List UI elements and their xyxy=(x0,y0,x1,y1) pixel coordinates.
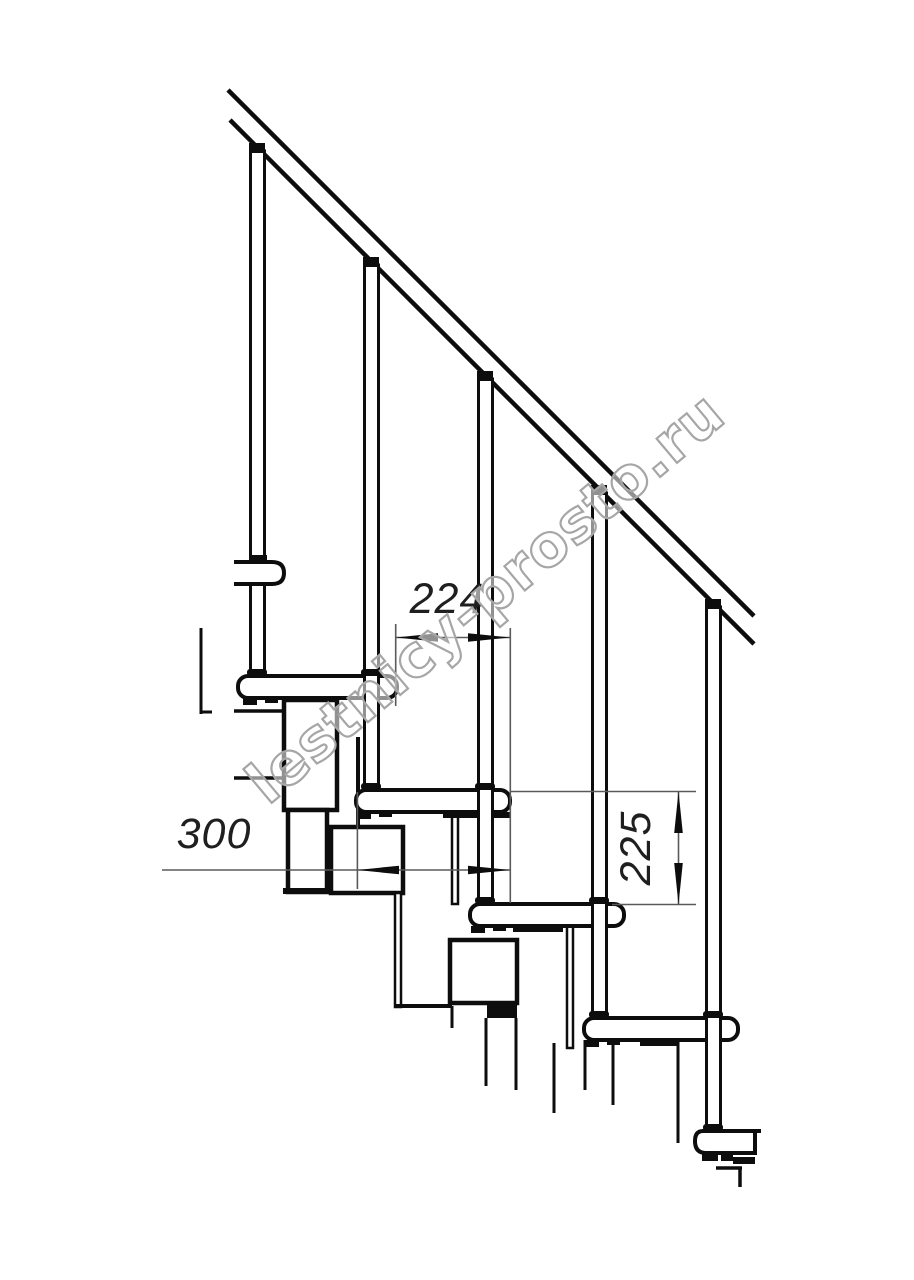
baluster-5 xyxy=(707,607,721,1131)
lower-flight-step-end xyxy=(695,1131,761,1187)
handrail-mount-3 xyxy=(477,371,493,381)
step-2-tab-b xyxy=(379,812,392,817)
dim-depth-label: 300 xyxy=(177,810,252,858)
upper-flight-step-end xyxy=(234,555,284,584)
step-4-underline xyxy=(640,1040,678,1046)
dim-rise-arrow-up xyxy=(674,792,683,834)
fastener-step2-right xyxy=(475,783,495,790)
upper-end-cap xyxy=(234,562,284,584)
fastener-step3-right xyxy=(589,897,609,904)
support-module-1-lower xyxy=(288,810,327,892)
lower-end-tab-a xyxy=(702,1153,718,1161)
lower-end-tab-b xyxy=(721,1155,733,1161)
lower-end-cap xyxy=(695,1131,755,1153)
fastener-step4-left xyxy=(589,1011,609,1018)
fastener-step1-left xyxy=(247,669,267,676)
step-3-tab-a xyxy=(471,926,485,933)
step-3-tab-b xyxy=(493,926,506,931)
drawing-canvas: 224 300 225 lestnicy-prosto.ru xyxy=(0,0,914,1280)
baluster-4 xyxy=(593,493,607,1018)
handrail-mount-2 xyxy=(363,257,379,267)
module-link-2-3 xyxy=(452,815,458,904)
support-module-2 xyxy=(331,827,403,893)
fastener-step4-right xyxy=(703,1011,723,1018)
lower-end-tab-c xyxy=(733,1157,755,1164)
module-2-drop-tube xyxy=(395,893,401,1007)
handrail-mount-1 xyxy=(249,143,265,153)
step-4-tab-a xyxy=(585,1040,599,1047)
staircase-drawing: 224 300 225 lestnicy-prosto.ru xyxy=(0,0,914,1280)
step-3-underline xyxy=(513,926,563,932)
baluster-1 xyxy=(251,151,265,676)
dim-rise-label: 225 xyxy=(612,811,660,887)
fastener-step3-left xyxy=(475,897,495,904)
step-2-underline xyxy=(443,812,510,818)
handrail-mount-5 xyxy=(705,599,721,609)
support-module-3-foot xyxy=(487,1003,517,1018)
dim-rise-arrow-down xyxy=(674,863,683,905)
step-1-tab-b xyxy=(265,698,278,703)
fastener-step2-left xyxy=(361,783,381,790)
step-1-tab-a xyxy=(243,698,257,705)
support-module-3 xyxy=(450,940,517,1003)
step-4-tab-b xyxy=(607,1040,620,1045)
module-link-3-4 xyxy=(567,926,573,1048)
step-2-tab-a xyxy=(357,812,371,819)
